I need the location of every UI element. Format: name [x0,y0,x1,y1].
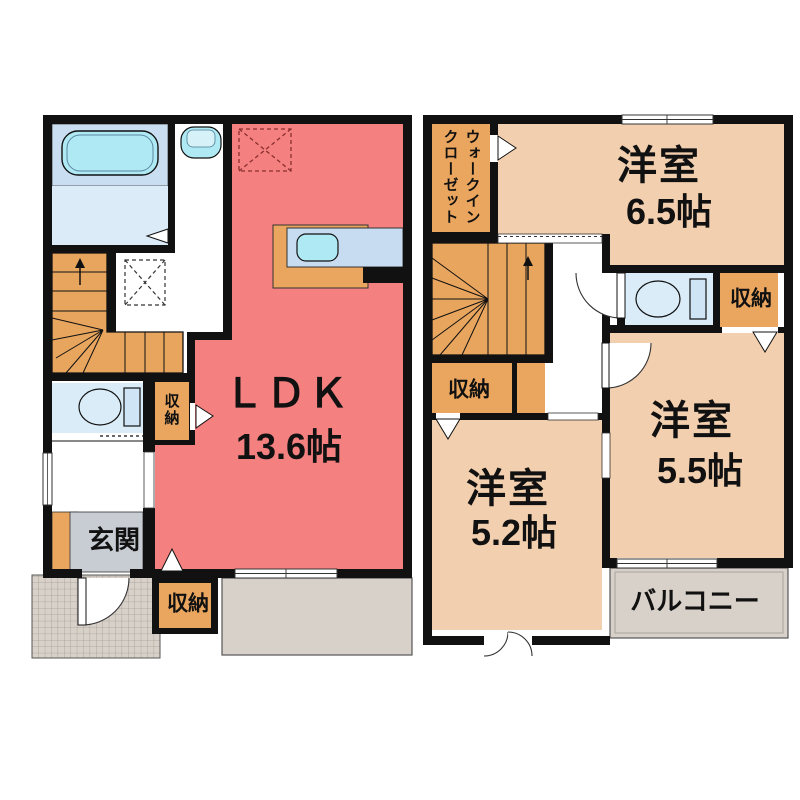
toilet2-tank [690,279,706,319]
room55-size-label: 5.5帖 [657,453,743,489]
hall-room52-opening [548,413,598,420]
entrance-label: 玄関 [88,527,140,553]
floorplan-canvas: ＬＤＫ 13.6帖 玄関 収納 収納 ウォークイン クローゼット 洋室 6.5帖… [0,0,800,800]
terrace [222,578,412,655]
toilet1-tank [124,388,140,426]
bathtub [62,131,158,175]
floor1-stairs [52,253,183,373]
room52-size-label: 5.2帖 [471,515,557,551]
floor2-stairs [432,243,545,355]
storage-stairs-label: 収納 [448,380,490,401]
floor2-fixtures [636,279,706,319]
entrance-door-leaf [78,578,86,625]
room65-label: 洋室 [617,146,701,186]
storage-hall2-label: 収納 [730,289,772,310]
toilet2-bowl [636,281,680,317]
kitchen-sink [297,234,338,261]
washing-machine-marker [125,260,165,305]
kitchen-range-block [363,267,403,283]
walk-in-closet-label: ウォークイン クローゼット [439,129,484,225]
room65-size-label: 6.5帖 [626,194,712,230]
storage-hall1-label: 収納 [164,393,179,427]
balcony-label: バルコニー [630,588,759,614]
hall-ldk-opening [144,452,154,508]
small-closet [517,363,545,413]
toilet2-door-leaf [617,273,625,318]
room55-label: 洋室 [650,401,734,441]
storage-hall-opening [190,403,195,430]
room52-room55-opening [602,433,610,478]
ldk-size-label: 13.6帖 [236,429,342,465]
room65-sliding-door [498,234,602,243]
ldk-label: ＬＤＫ [224,374,350,414]
toilet1-bowl [79,389,121,425]
room52-label: 洋室 [466,469,550,509]
storage-south-label: 収納 [167,594,209,615]
room55-door-leaf [602,343,609,388]
wic-line1: ウォークイン [462,129,483,225]
wic-line2: クローゼット [440,129,461,225]
toilet2-door-swing [576,273,621,318]
